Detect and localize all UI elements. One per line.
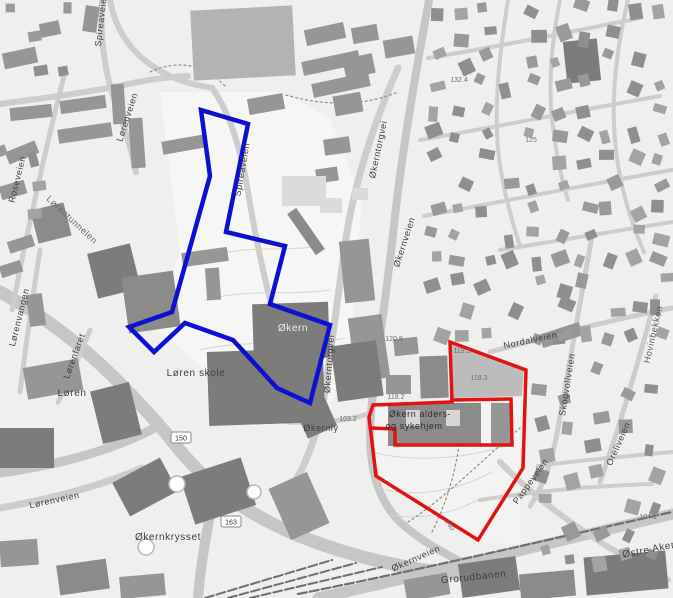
elevation-label: 104.1 [639,514,657,521]
route-shield-number: 150 [175,436,187,443]
building [320,198,342,213]
building [660,273,673,283]
elevation-label: 120.8 [385,336,403,343]
building [651,200,664,213]
building [644,444,654,456]
building [531,257,541,272]
building [564,554,574,564]
elevation-label: 119.3 [454,348,471,355]
building [454,8,468,21]
building [58,65,69,76]
building [27,208,42,219]
building [32,180,46,191]
building [484,26,497,35]
elevation-label: 118.3 [471,375,488,382]
route-shield: 163 [221,516,241,527]
building [491,403,512,445]
building [419,356,448,399]
building [455,330,469,342]
building [644,384,658,394]
elevation-label: 125 [525,137,537,144]
building [599,201,612,215]
building [633,225,645,234]
building [539,494,552,503]
building [599,150,614,160]
building [607,0,619,12]
building [450,272,465,286]
building [611,307,626,316]
building [452,203,463,213]
building [531,30,547,43]
building [453,33,469,47]
elevation-label: 118.2 [388,394,405,401]
building [526,226,539,236]
roundabout [169,476,185,492]
building [431,8,444,21]
building [282,176,326,206]
poi-label: Økern alders- [389,409,451,419]
building [386,375,411,394]
building [330,340,383,402]
building [205,268,221,301]
building [352,188,368,200]
building [190,5,296,80]
map-view: SpireaveienLørenveienSpireaveienRoseveie… [0,0,673,598]
elevation-label: 132.4 [450,77,468,84]
building [33,64,48,76]
building [531,383,547,396]
building [432,251,442,261]
building [477,2,487,12]
building [475,206,487,218]
building [632,301,648,313]
map-canvas: SpireaveienLørenveienSpireaveienRoseveie… [0,0,673,598]
building [652,4,665,20]
building [0,428,54,468]
building [428,106,438,122]
building [63,2,71,13]
roundabout [247,485,261,499]
building [591,555,607,572]
building [628,3,643,21]
route-shield: 150 [171,432,191,443]
elevation-label: 103.2 [339,416,357,423]
building [119,573,166,598]
building [0,539,39,568]
route-shield-number: 163 [225,520,237,527]
building [504,178,520,190]
poi-label: og sykehjem [385,421,442,431]
building [577,31,590,48]
building [519,570,576,598]
street-label: Økernly [303,423,338,433]
building [121,271,180,334]
building [584,438,602,453]
street-label: Løren skole [167,368,226,379]
building [561,421,573,435]
building [481,328,491,339]
building [552,156,567,171]
building [28,30,42,42]
building [6,4,15,13]
street-label: Økernkrysset [135,532,201,543]
street-label: Løren [57,388,86,399]
building [526,55,538,68]
building [552,129,568,143]
street-label: Økern [278,323,308,334]
